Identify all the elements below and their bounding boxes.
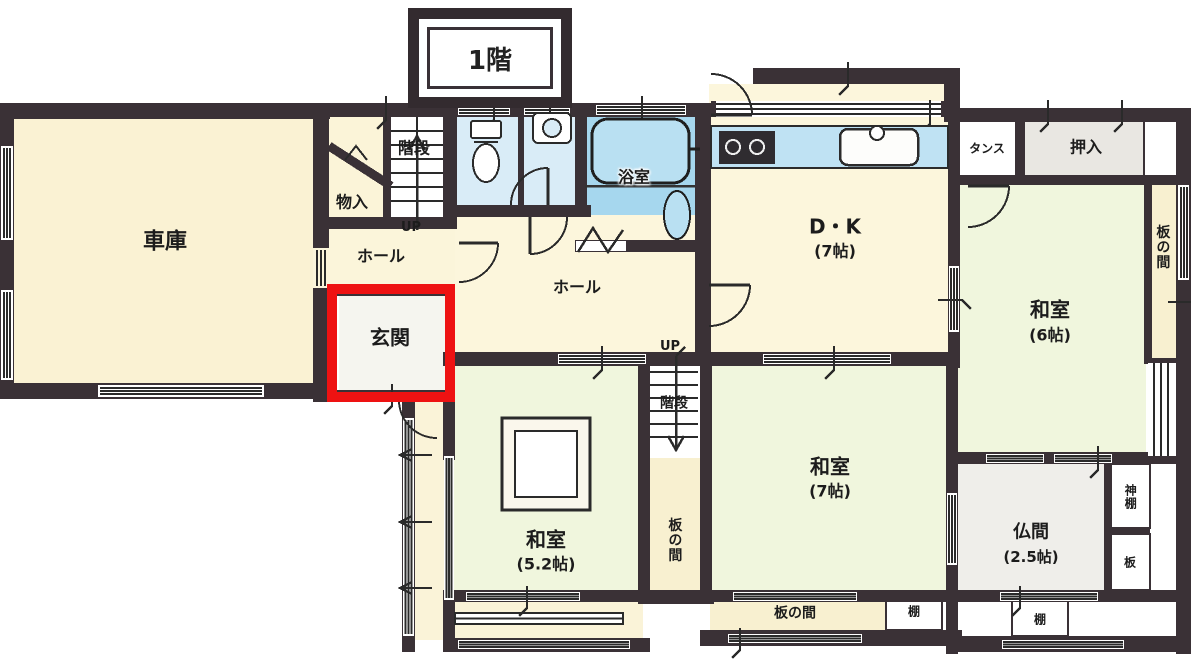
room-label-itanoma-center: 板の間: [667, 518, 682, 563]
room-label-stairs-upper: 階段: [398, 141, 430, 158]
room-size-dk: (7帖): [814, 244, 856, 261]
room-label-storage: 物入: [336, 195, 368, 212]
room-label-bathroom: 浴室: [618, 170, 650, 187]
room-label-shelf-right: 棚: [1034, 614, 1046, 627]
room-label-butsuma: 仏間: [1013, 524, 1049, 543]
entrance-highlight-box[interactable]: [327, 284, 455, 402]
room-size-washitsu52: (5.2帖): [517, 557, 576, 574]
room-label-ita: 板: [1124, 557, 1136, 570]
room-label-shelf-left: 棚: [908, 606, 920, 619]
floor-title-box: 1階: [408, 8, 572, 108]
floor-title: 1階: [468, 40, 512, 77]
room-label-hall-upper: ホール: [357, 249, 405, 266]
room-size-washitsu7: (7帖): [809, 484, 851, 501]
room-label-oshiire: 押入: [1070, 140, 1102, 157]
room-label-itanoma-right: 板の間: [1155, 225, 1170, 270]
room-label-itanoma-bottom: 板の間: [774, 607, 816, 622]
room-label-kamidana: 神棚: [1124, 484, 1137, 510]
room-label-tansu: タンス: [969, 143, 1005, 156]
room-size-washitsu6: (6帖): [1029, 328, 1071, 345]
room-label-garage: 車庫: [143, 230, 187, 253]
room-label-washitsu6: 和室: [1030, 300, 1070, 321]
kotatsu-icon: [502, 418, 590, 510]
room-label-hall-main: ホール: [553, 280, 601, 297]
room-label-stairs-lower: 階段: [660, 397, 688, 412]
sink-icon: [533, 113, 571, 143]
toilet-icon: [471, 121, 501, 182]
label-up-upper: UP: [401, 221, 421, 235]
room-label-washitsu52: 和室: [526, 530, 566, 551]
room-label-dk: D・K: [809, 217, 861, 238]
stove-icon: [719, 131, 775, 164]
kitchen-counter: [711, 126, 948, 168]
room-label-washitsu7: 和室: [810, 457, 850, 478]
floor-plan: 1階 車庫 階段 物入 UP ホール 玄関 浴室 ホール D・K (7帖) タン…: [0, 0, 1191, 666]
label-up-lower: UP: [660, 340, 680, 354]
room-size-butsuma: (2.5帖): [1003, 550, 1058, 566]
